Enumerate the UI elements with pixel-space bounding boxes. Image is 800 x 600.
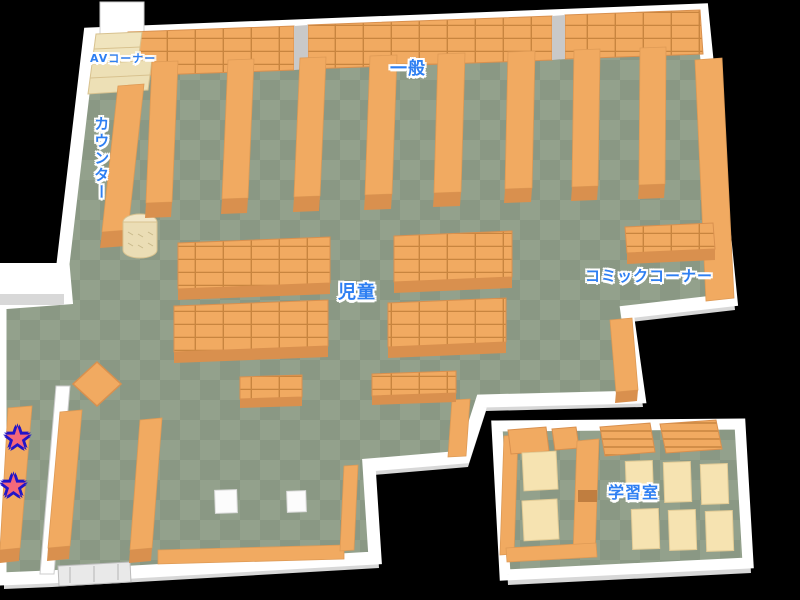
- stool: [215, 490, 238, 514]
- stool: [287, 491, 307, 513]
- study-shelf: [552, 427, 579, 450]
- wing-shelf-front: [129, 548, 152, 563]
- study-desk: [700, 464, 728, 505]
- library-floor-map: AVコーナー 一般 カウンター 児童 コミックコーナー 学習室 ★ ★: [0, 0, 800, 600]
- children-low-bench: [240, 375, 302, 399]
- area-label-comic-corner: コミックコーナー: [585, 268, 713, 285]
- bookshelf-column-front: [571, 186, 598, 201]
- comic-wall-shelf-lower-front: [615, 390, 638, 403]
- study-top-shelf-unit: [660, 420, 722, 453]
- bookshelf-column: [434, 53, 465, 193]
- entrance-vestibule-wall-front: [0, 294, 64, 305]
- children-shelf: [394, 231, 512, 282]
- floor-map-graphic: [0, 0, 800, 600]
- bookshelf-column-front: [638, 184, 665, 199]
- study-desk: [668, 510, 696, 551]
- star-marker-1[interactable]: ★: [4, 424, 31, 454]
- bookshelf-column-front: [433, 192, 461, 207]
- bookshelf-column-front: [145, 202, 172, 218]
- children-shelf: [388, 298, 506, 347]
- area-label-counter: カウンター: [92, 116, 109, 201]
- study-top-shelf-unit: [600, 423, 655, 456]
- bookshelf-column-front: [504, 188, 532, 203]
- children-shelf: [178, 237, 330, 289]
- study-desk: [663, 462, 691, 503]
- wall-pillar: [552, 15, 565, 60]
- star-shelf-front: [0, 548, 20, 563]
- bookshelf-column: [294, 57, 326, 197]
- area-label-av-corner: AVコーナー: [90, 53, 156, 66]
- star-marker-2[interactable]: ★: [0, 472, 27, 502]
- study-partition-gap: [578, 490, 597, 502]
- area-label-general: 一般: [390, 60, 426, 80]
- study-shelf: [508, 427, 549, 454]
- study-desk: [522, 499, 559, 541]
- notch-wall-shelf: [448, 399, 470, 457]
- study-desk: [705, 511, 733, 552]
- area-label-children: 児童: [338, 283, 376, 304]
- children-shelf: [174, 300, 328, 352]
- entrance-vestibule-wall: [0, 263, 64, 297]
- display-rack-body: [123, 222, 157, 258]
- study-desk: [631, 509, 659, 550]
- bookshelf-column-front: [221, 198, 248, 214]
- comic-shelf-horizontal: [625, 223, 715, 253]
- area-label-study-room: 学習室: [608, 484, 659, 502]
- children-low-bench: [372, 371, 456, 396]
- bookshelf-column: [146, 61, 178, 203]
- bookshelf-column: [572, 49, 600, 187]
- study-desk: [522, 451, 558, 491]
- study-room-building: [497, 420, 751, 585]
- bookshelf-column: [505, 51, 535, 189]
- bookshelf-column: [639, 47, 666, 185]
- av-booth-wall: [100, 2, 144, 34]
- bookshelf-column: [222, 59, 254, 199]
- wing-shelf-front: [47, 546, 70, 561]
- bookshelf-column-front: [364, 194, 392, 210]
- bookshelf-column-front: [293, 196, 320, 212]
